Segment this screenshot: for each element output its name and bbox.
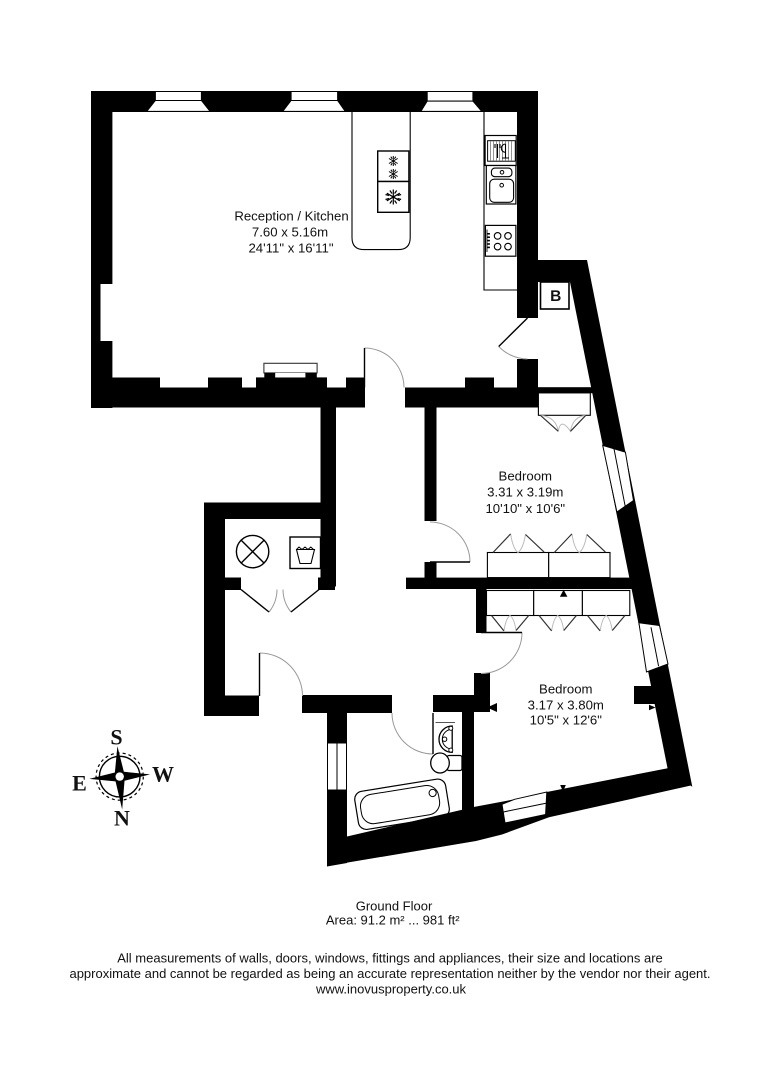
svg-text:10'5" x 12'6": 10'5" x 12'6" [530, 713, 603, 728]
svg-text:Bedroom: Bedroom [539, 682, 593, 697]
svg-text:Reception / Kitchen: Reception / Kitchen [234, 209, 348, 224]
svg-text:10'10" x 10'6": 10'10" x 10'6" [485, 501, 565, 516]
svg-text:3.31 x 3.19m: 3.31 x 3.19m [487, 485, 563, 500]
svg-text:24'11" x 16'11": 24'11" x 16'11" [248, 241, 333, 256]
svg-text:Bedroom: Bedroom [499, 469, 553, 484]
svg-text:Ground Floor: Ground Floor [356, 898, 433, 913]
svg-text:www.inovusproperty.co.uk: www.inovusproperty.co.uk [315, 982, 467, 997]
svg-text:All measurements of walls, doo: All measurements of walls, doors, window… [117, 951, 663, 966]
svg-text:N: N [114, 806, 130, 831]
svg-text:Area: 91.2 m² ... 981 ft²: Area: 91.2 m² ... 981 ft² [326, 913, 460, 928]
svg-text:7.60 x 5.16m: 7.60 x 5.16m [252, 225, 328, 240]
svg-text:S: S [110, 725, 122, 750]
svg-text:approximate and cannot be rega: approximate and cannot be regarded as be… [69, 966, 710, 981]
svg-text:W: W [152, 762, 174, 787]
svg-text:3.17 x 3.80m: 3.17 x 3.80m [528, 698, 604, 713]
svg-text:E: E [72, 771, 87, 796]
svg-text:B: B [550, 288, 561, 305]
